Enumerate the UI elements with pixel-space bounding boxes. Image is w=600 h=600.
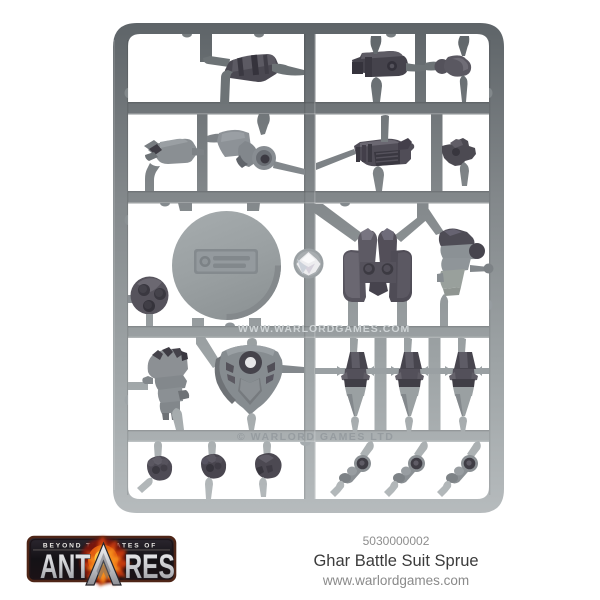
svg-text:Ghar Battle Suit Sprue: Ghar Battle Suit Sprue (313, 552, 478, 570)
svg-text:RES: RES (125, 548, 175, 586)
svg-text:ANT: ANT (40, 548, 90, 586)
svg-text:5030000002: 5030000002 (363, 534, 430, 548)
svg-text:www.warlordgames.com: www.warlordgames.com (322, 573, 469, 588)
svg-text:WWW.WARLORDGAMES.COM: WWW.WARLORDGAMES.COM (238, 323, 410, 335)
